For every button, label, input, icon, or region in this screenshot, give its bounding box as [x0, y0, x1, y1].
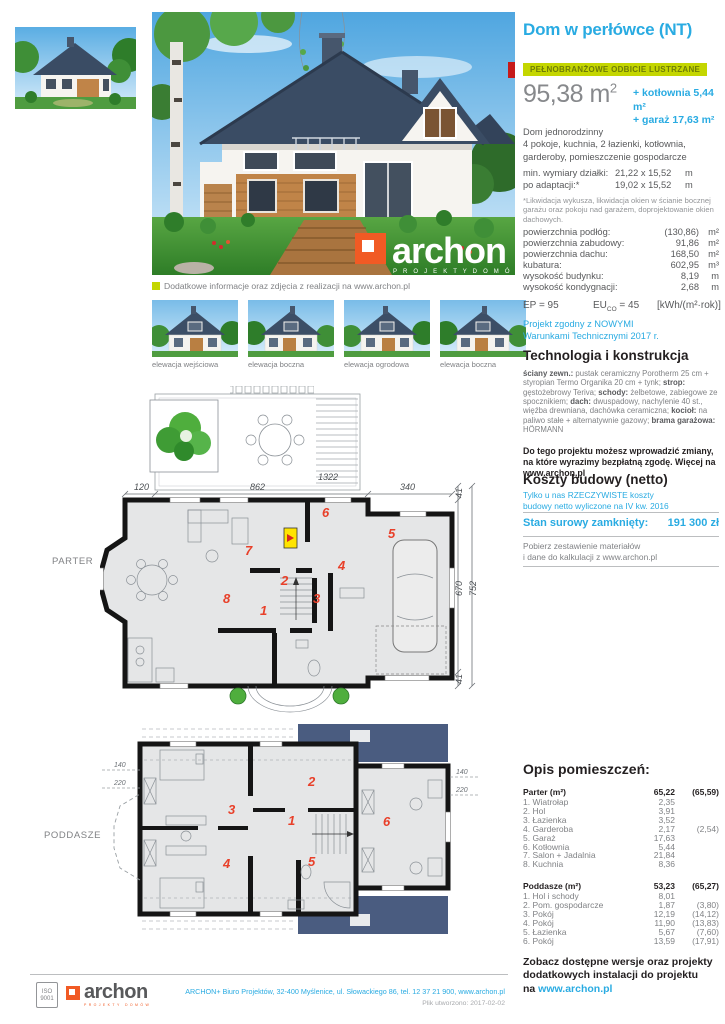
room-number: 8 — [223, 591, 231, 606]
energy-indicators: EP = 95 EUCO = 45 [kWh/(m²·rok)] — [523, 300, 719, 311]
poddasze-annex-outline — [356, 766, 448, 888]
svg-text:140: 140 — [114, 762, 126, 769]
areas-row: wysokość budynku:8,19m — [523, 271, 719, 282]
watermark-subword: P R O J E K T Y D O M Ó W — [393, 268, 515, 275]
elevation-garden-label: elewacja ogrodowa — [344, 360, 430, 369]
usable-area-value: 95,38 m2 — [523, 80, 617, 108]
materials-download-note[interactable]: Pobierz zestawienie materiałów i dane do… — [523, 541, 719, 563]
plot-row: po adaptacji:* 19,02 x 15,52 m — [523, 179, 719, 191]
svg-text:340: 340 — [400, 482, 415, 492]
usable-area-row: 95,38 m2 + kotłownia 5,44 m² + garaż 17,… — [523, 80, 719, 109]
elevation-side-2: elewacja boczna — [440, 300, 526, 369]
eu-value: EUCO = 45 — [593, 300, 639, 313]
svg-text:1322: 1322 — [318, 472, 338, 482]
page-title: Dom w perłówce (NT) — [523, 20, 719, 40]
svg-text:220: 220 — [113, 780, 126, 787]
parter-rooms-table: Parter (m²)65,22(65,59) 1. Wiatrołap2,35… — [523, 786, 719, 869]
footer-address[interactable]: ARCHON+ Biuro Projektów, 32-400 Myślenic… — [158, 987, 505, 996]
room-number: 3 — [228, 802, 236, 817]
room-number: 4 — [222, 856, 231, 871]
svg-text:670: 670 — [454, 581, 464, 596]
svg-text:140: 140 — [456, 769, 468, 776]
room-number: 5 — [388, 526, 396, 541]
main-photo: archon P R O J E K T Y D O M Ó W — [152, 12, 515, 275]
costs-heading: Koszty budowy (netto) — [523, 472, 719, 487]
elevation-side-1-label: elewacja boczna — [248, 360, 334, 369]
house-thumbnail-image — [15, 27, 136, 109]
room-number: 1 — [288, 813, 295, 828]
plot-row: min. wymiary działki: 21,22 x 15,52 m — [523, 167, 719, 179]
svg-text:220: 220 — [455, 787, 468, 794]
room-row: 6. Pokój13,59(17,91) — [523, 937, 719, 946]
archon-footer-logo: archon PROJEKTY DOMÓW — [66, 981, 151, 1007]
shell-state-value: 191 300 zł — [648, 517, 719, 529]
datasheet-page: { "colors":{"accent_blue":"#29abe2","bad… — [0, 0, 725, 1024]
room-number: 5 — [308, 854, 316, 869]
shell-state-label: Stan surowy zamknięty: — [523, 517, 648, 529]
wt2017-note: Projekt zgodny z NOWYMI Warunkami Techni… — [523, 318, 719, 342]
elevation-side-1-image — [248, 300, 334, 357]
plot-value: 19,02 x 15,52 — [615, 179, 685, 191]
shell-state-row: Stan surowy zamknięty: 191 300 zł — [523, 517, 719, 529]
areas-row: wysokość kondygnacji:2,68m — [523, 282, 719, 293]
energy-unit: [kWh/(m²·rok)] — [657, 300, 721, 311]
entry-porch — [230, 686, 349, 712]
archon-logo-subword: PROJEKTY DOMÓW — [84, 1003, 151, 1007]
costs-subnote: Tylko u nas RZECZYWISTE koszty budowy ne… — [523, 490, 719, 511]
bay-roof-outline — [114, 794, 140, 880]
areas-row: powierzchnia podłóg:(130,86)m² — [523, 227, 719, 238]
areas-table: powierzchnia podłóg:(130,86)m² powierzch… — [523, 227, 719, 293]
elevation-side-1: elewacja boczna — [248, 300, 334, 369]
svg-text:41: 41 — [454, 674, 464, 684]
elevation-garden-image — [344, 300, 430, 357]
rooms-heading: Opis pomieszczeń: — [523, 761, 719, 777]
house-thumbnail — [15, 27, 136, 109]
plot-label: min. wymiary działki: — [523, 167, 615, 179]
plot-label: po adaptacji:* — [523, 179, 615, 191]
room-number: 2 — [280, 573, 289, 588]
room-number: 6 — [322, 505, 330, 520]
room-number: 7 — [245, 543, 253, 558]
plot-dimensions: min. wymiary działki: 21,22 x 15,52 m po… — [523, 167, 719, 191]
room-number: 3 — [313, 591, 321, 606]
archon-link[interactable]: www.archon.pl — [538, 983, 612, 995]
divider — [523, 536, 719, 537]
technology-paragraph: ściany zewn.: pustak ceramiczny Porother… — [523, 369, 719, 434]
room-number: 2 — [307, 774, 316, 789]
archon-logo-square-icon — [66, 986, 80, 1000]
main-photo-image: archon P R O J E K T Y D O M Ó W — [152, 12, 515, 275]
ep-value: EP = 95 — [523, 300, 559, 311]
watermark-word: archon — [392, 230, 506, 271]
floor-plan-parter: 120 862 340 1322 — [100, 378, 482, 714]
room-row: 8. Kuchnia8,36 — [523, 860, 719, 869]
svg-text:120: 120 — [134, 482, 149, 492]
footer-divider — [30, 974, 508, 975]
parter-plan-label: PARTER — [52, 556, 93, 567]
additional-info-line: Dodatkowe informacje oraz zdjęcia z real… — [152, 281, 515, 291]
house-description: Dom jednorodzinny 4 pokoje, kuchnia, 2 ł… — [523, 126, 719, 163]
divider — [523, 512, 719, 513]
svg-text:41: 41 — [454, 488, 464, 498]
areas-row: kubatura:602,95m³ — [523, 260, 719, 271]
room-row: 1. Wiatrołap2,35 — [523, 798, 719, 807]
technology-heading: Technologia i konstrukcja — [523, 348, 719, 363]
red-edge-marker — [508, 62, 515, 78]
elevation-entry: elewacja wejściowa — [152, 300, 238, 369]
elevation-side-2-image — [440, 300, 526, 357]
cta-note: Zobacz dostępne wersje oraz projekty dod… — [523, 956, 719, 996]
adaptation-footnote: *Likwidacja wykusza, likwidacja okien w … — [523, 196, 719, 224]
additional-info-text[interactable]: Dodatkowe informacje oraz zdjęcia z real… — [164, 281, 410, 291]
floor-plan-poddasze: 1 2 3 4 5 6 140 220 140 220 — [100, 720, 482, 940]
poddasze-plan-label: PODDASZE — [44, 830, 101, 841]
divider — [523, 566, 719, 567]
file-created-note: Plik utworzono: 2017-02-02 — [158, 1000, 505, 1007]
plot-unit: m — [685, 167, 705, 179]
areas-row: powierzchnia zabudowy:91,86m² — [523, 238, 719, 249]
plot-value: 21,22 x 15,52 — [615, 167, 685, 179]
svg-text:752: 752 — [468, 581, 478, 596]
areas-row: powierzchnia dachu:168,50m² — [523, 249, 719, 260]
green-square-bullet-icon — [152, 282, 160, 290]
archon-logo-word: archon — [84, 981, 151, 1003]
room-number: 1 — [260, 603, 267, 618]
elevation-side-2-label: elewacja boczna — [440, 360, 526, 369]
poddasze-rooms-table: Poddasze (m²)53,23(65,27) 1. Hol i schod… — [523, 880, 719, 945]
room-number: 6 — [383, 814, 391, 829]
extra-areas: + kotłownia 5,44 m² + garaż 17,63 m² — [633, 87, 719, 128]
plot-unit: m — [685, 179, 705, 191]
elevation-entry-image — [152, 300, 238, 357]
mirror-version-badge: PEŁNOBRANŻOWE ODBICIE LUSTRZANE — [523, 63, 707, 76]
elevation-garden: elewacja ogrodowa — [344, 300, 430, 369]
elevation-entry-label: elewacja wejściowa — [152, 360, 238, 369]
svg-text:862: 862 — [250, 482, 265, 492]
iso-9001-badge: ISO 9001 — [36, 982, 58, 1008]
room-number: 4 — [337, 558, 346, 573]
